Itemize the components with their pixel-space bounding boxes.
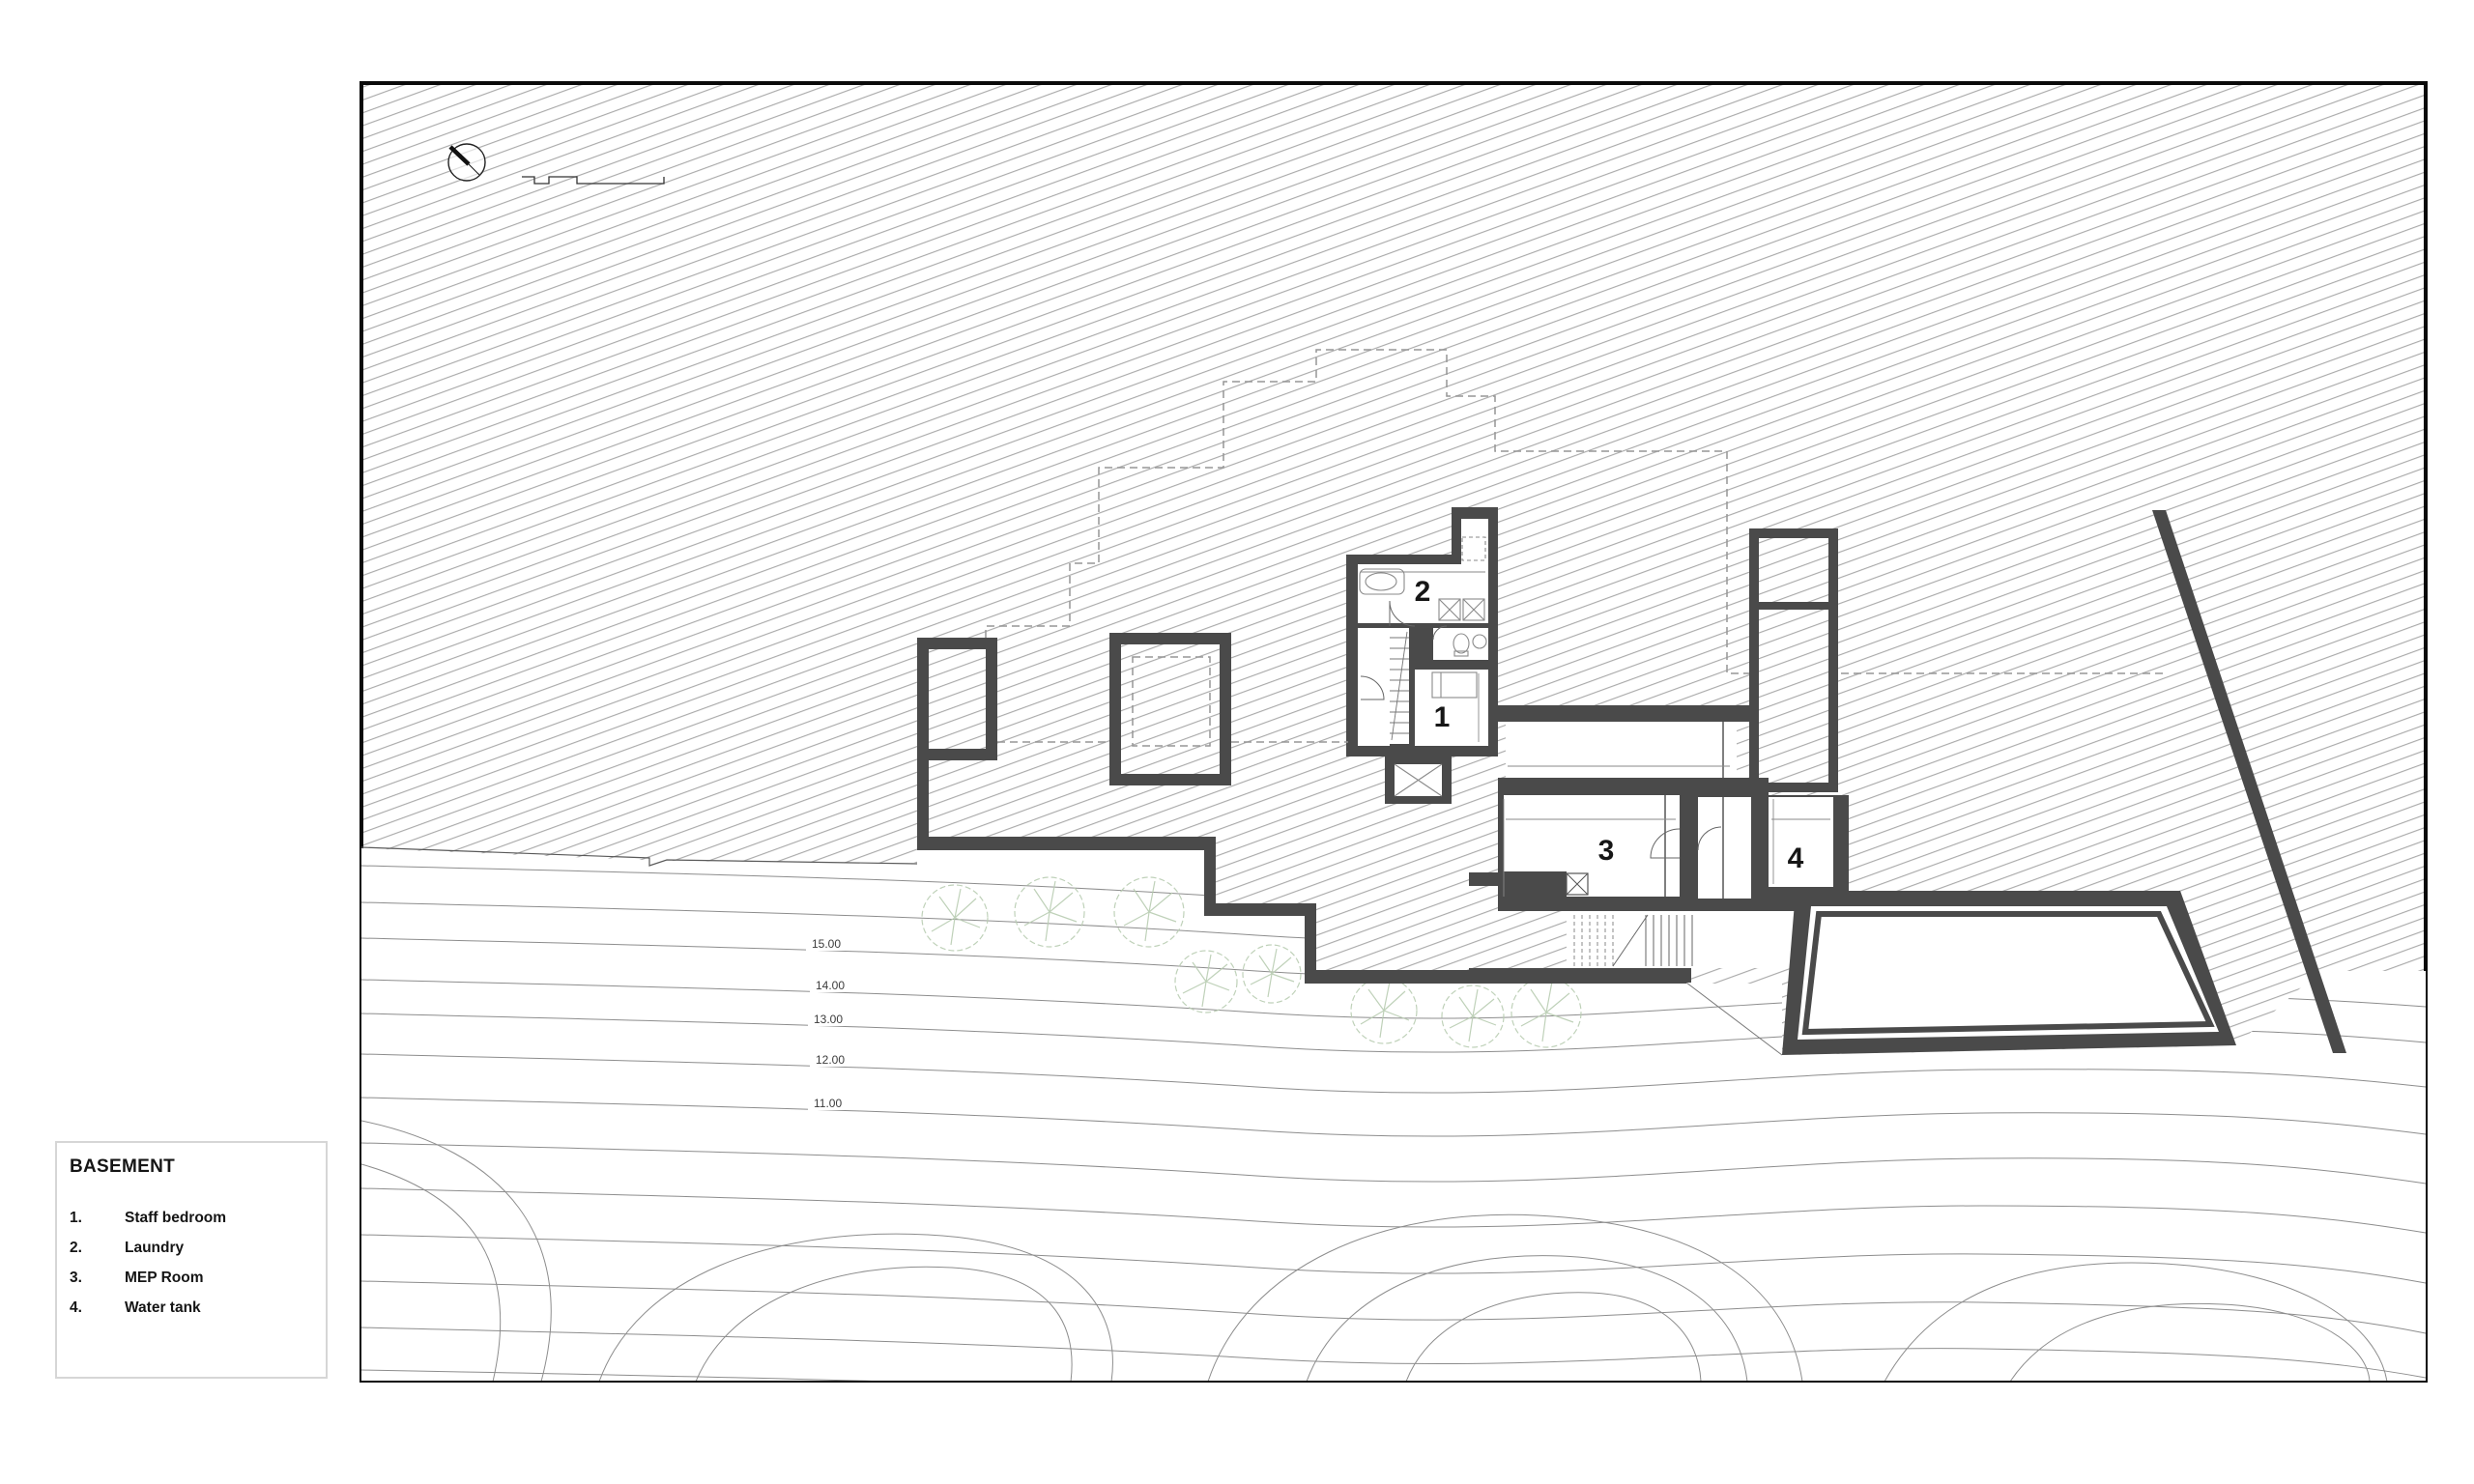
legend-item-label: Staff bedroom xyxy=(125,1203,226,1233)
room-label-water-tank: 4 xyxy=(1788,842,1804,874)
legend-item: 2. Laundry xyxy=(70,1233,326,1263)
room-label-laundry: 2 xyxy=(1415,576,1431,608)
legend-box: BASEMENT 1. Staff bedroom 2. Laundry 3. … xyxy=(55,1141,328,1379)
legend-item-number: 3. xyxy=(70,1263,125,1293)
legend-item-label: MEP Room xyxy=(125,1263,204,1293)
legend-item: 4. Water tank xyxy=(70,1293,326,1323)
contour-label: 12.00 xyxy=(816,1053,845,1067)
site-plan-drawing: 15.00 14.00 13.00 12.00 11.00 xyxy=(0,0,2474,1484)
north-arrow-icon xyxy=(448,144,485,181)
legend-item: 3. MEP Room xyxy=(70,1263,326,1293)
equipment-square xyxy=(1567,873,1588,895)
legend-item-number: 2. xyxy=(70,1233,125,1263)
legend-item-label: Laundry xyxy=(125,1233,184,1263)
legend-item: 1. Staff bedroom xyxy=(70,1203,326,1233)
legend-title: BASEMENT xyxy=(70,1156,326,1178)
contour-label: 13.00 xyxy=(814,1013,843,1026)
contour-label: 11.00 xyxy=(814,1097,842,1110)
legend-item-number: 4. xyxy=(70,1293,125,1323)
contour-label: 14.00 xyxy=(816,979,845,992)
basement-plan-page: { "legend": { "title": "BASEMENT", "item… xyxy=(0,0,2474,1484)
contour-label: 15.00 xyxy=(812,937,841,951)
room-label-staff-bedroom: 1 xyxy=(1434,701,1451,733)
legend-item-number: 1. xyxy=(70,1203,125,1233)
legend-item-label: Water tank xyxy=(125,1293,201,1323)
room-label-mep-room: 3 xyxy=(1598,835,1615,867)
pool xyxy=(1782,891,2236,1055)
